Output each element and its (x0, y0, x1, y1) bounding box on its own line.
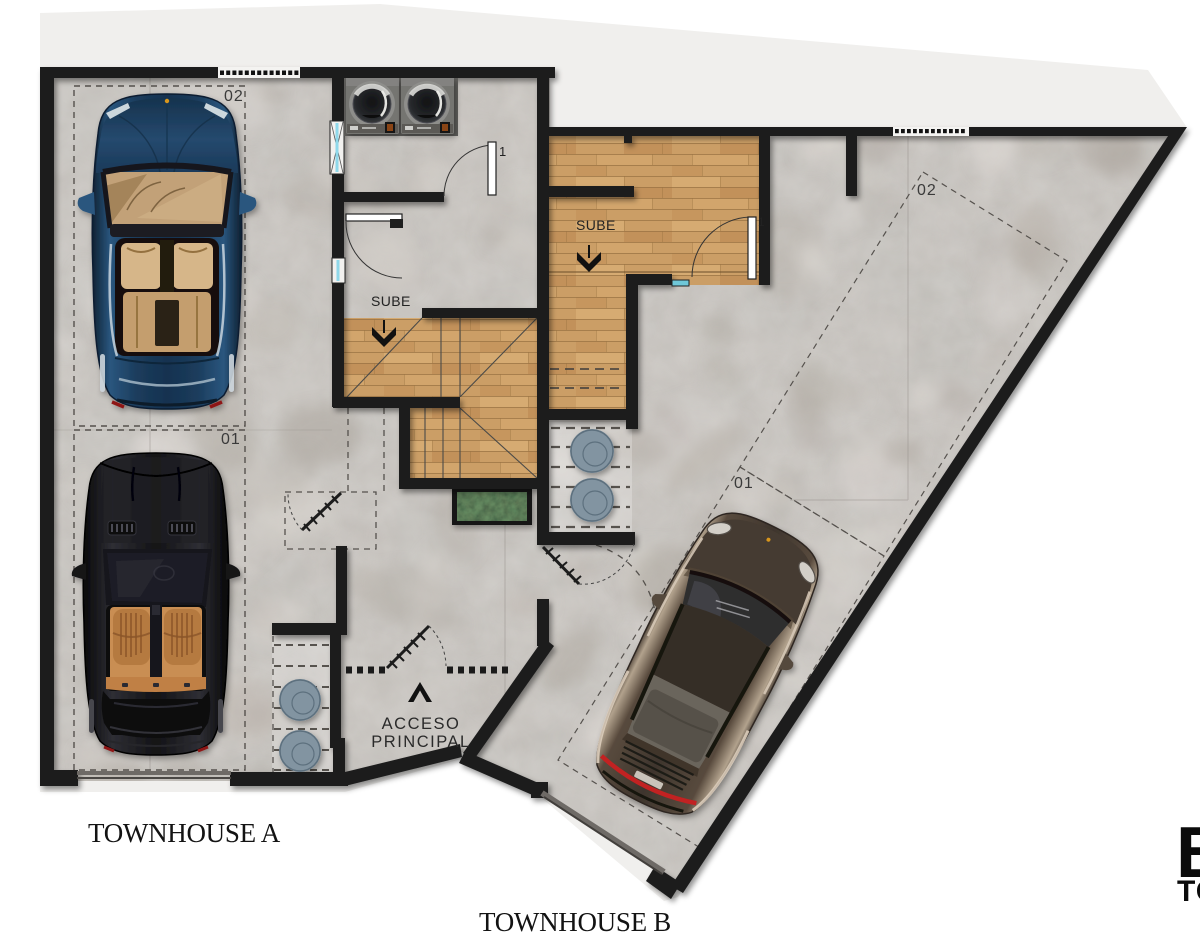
svg-text:1: 1 (499, 144, 506, 159)
svg-text:01: 01 (221, 431, 241, 448)
svg-text:TOWNHOUSE B: TOWNHOUSE B (479, 907, 671, 937)
svg-text:SUBE: SUBE (576, 217, 616, 233)
svg-text:01: 01 (734, 475, 754, 492)
svg-text:PRINCIPAL: PRINCIPAL (371, 733, 470, 751)
svg-text:1: 1 (758, 215, 765, 229)
svg-text:ACCESO: ACCESO (382, 715, 461, 733)
svg-text:SUBE: SUBE (371, 293, 411, 309)
svg-text:TO: TO (1177, 875, 1200, 908)
svg-text:02: 02 (224, 88, 244, 105)
svg-text:02: 02 (917, 182, 937, 199)
svg-text:TOWNHOUSE A: TOWNHOUSE A (88, 818, 281, 848)
